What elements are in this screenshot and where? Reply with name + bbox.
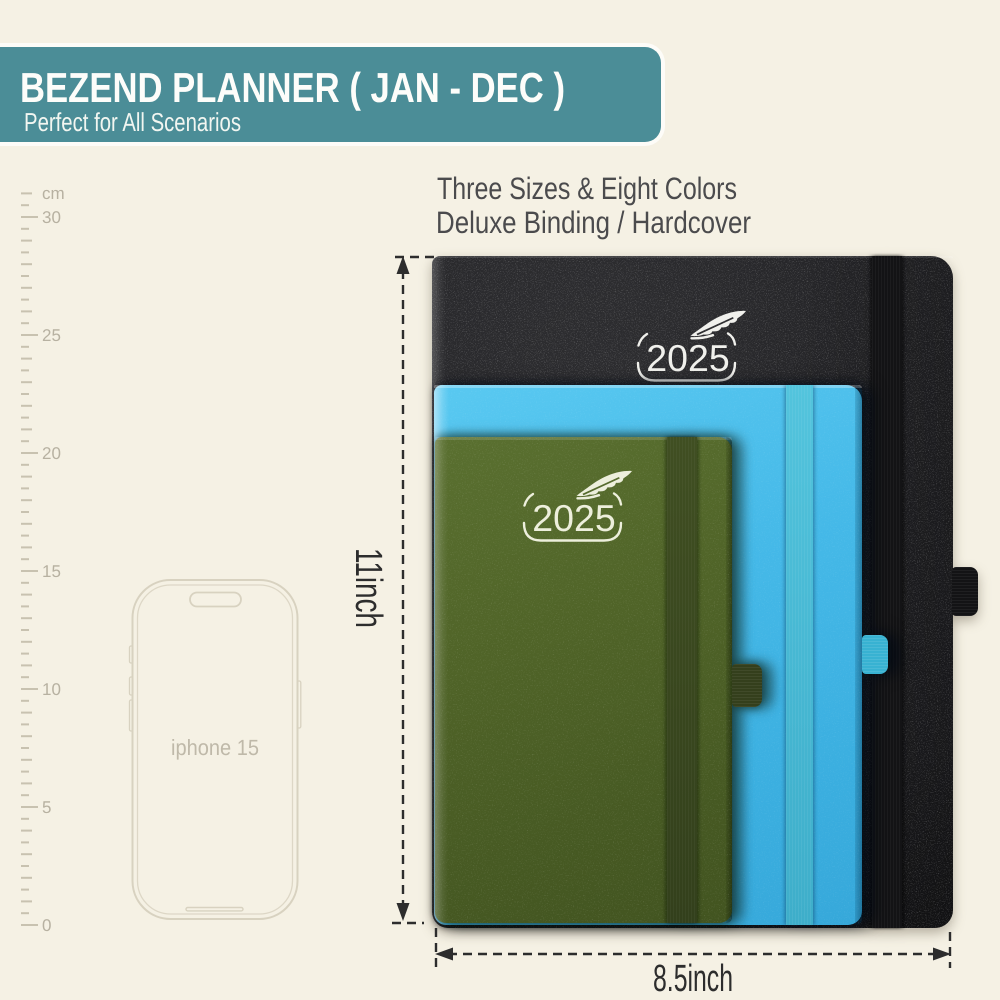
svg-text:8.5inch: 8.5inch bbox=[653, 958, 733, 1000]
svg-text:11inch: 11inch bbox=[347, 548, 389, 628]
